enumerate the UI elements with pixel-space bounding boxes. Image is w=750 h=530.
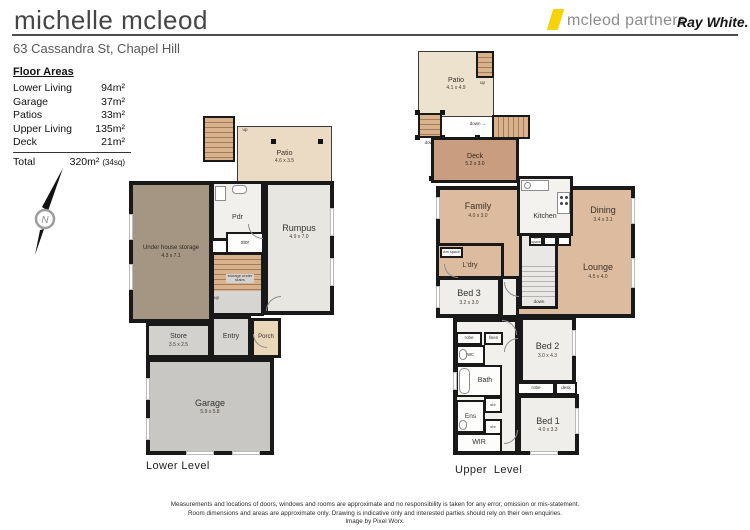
deck-post (440, 110, 445, 115)
property-address: 63 Cassandra St, Chapel Hill (13, 41, 180, 56)
room-label: Patio (448, 77, 464, 86)
deck-post (318, 139, 323, 144)
room-dims: 4.5 x 4.0 (566, 274, 630, 281)
room-dims: 4.0 x 3.3 (538, 427, 557, 433)
window (575, 408, 579, 434)
toilet-icon (232, 185, 247, 194)
sink-icon (524, 182, 531, 189)
room-store: Store 3.5 x 2.5 (146, 323, 211, 358)
room-dims: 4.1 x 4.9 (446, 85, 465, 91)
stairs-lower-mid-icon (211, 252, 264, 316)
row-label: Deck (13, 136, 37, 150)
window (330, 258, 334, 286)
disclaimer: Measurements and locations of doors, win… (0, 501, 750, 527)
linen-cupboard: linen (484, 332, 503, 345)
window (631, 258, 635, 288)
stairs-down-label: down → (465, 122, 491, 127)
row-label: Lower Living (13, 82, 72, 96)
label-text: ref space (531, 237, 541, 245)
stove-icon (557, 192, 570, 214)
room-dims: 3.0 x 4.3 (538, 353, 557, 359)
room-label: Store (170, 333, 187, 342)
table-row: Deck 21m² (13, 136, 125, 150)
row-value: 21m² (101, 136, 125, 150)
window (436, 197, 440, 219)
room-family: Family 4.0 x 3.0 (442, 201, 514, 219)
room-lounge: Lounge 4.5 x 4.0 (566, 262, 630, 280)
label-text: robe (531, 386, 540, 391)
lower-level-caption: Lower Level (146, 460, 210, 472)
room-dims: 4.9 x 7.0 (289, 234, 308, 240)
room-label: L'dry (463, 262, 478, 271)
row-value: 135m² (95, 123, 125, 137)
total-area: 320m² (70, 156, 100, 168)
room-dims: 3.2 x 3.0 (459, 300, 478, 306)
brand-ray-white: Ray White. (677, 14, 749, 30)
room-entry: Entry (211, 316, 251, 358)
window (631, 198, 635, 224)
room-label: Kitchen (533, 213, 556, 222)
table-row: Patios 33m² (13, 109, 125, 123)
robe-bed3: robe (456, 332, 482, 345)
pantry-cupboard (543, 236, 557, 246)
room-label: Patio (277, 150, 293, 159)
room-label: shr (490, 425, 496, 429)
room-label: Rumpus (282, 223, 316, 234)
window (232, 451, 260, 455)
pantry-cupboard (557, 236, 571, 246)
room-bed3: Bed 3 3.2 x 3.0 (436, 276, 502, 318)
window (186, 451, 214, 455)
room-label: Lounge (566, 262, 630, 274)
row-label: Patios (13, 109, 42, 123)
floor-areas-title: Floor Areas (13, 66, 131, 78)
room-dims: 5.2 x 3.0 (465, 161, 484, 167)
window (530, 451, 558, 455)
toilet-icon (459, 420, 467, 430)
window (453, 372, 457, 390)
header-divider (12, 34, 738, 36)
room-dims: 5.9 x 5.8 (200, 409, 219, 415)
row-value: 94m² (101, 82, 125, 96)
room-wir: WIR (456, 433, 502, 453)
brand-mcleod-partners: mcleod partners (567, 12, 686, 30)
ref-space-label: ref space (529, 236, 543, 246)
label-text: wm space (443, 250, 460, 254)
room-label: Bed 1 (536, 416, 560, 427)
toilet-icon (459, 349, 467, 360)
deck-post (271, 139, 276, 144)
room-label: Family (442, 201, 514, 213)
room-dims: 3.5 x 2.5 (169, 342, 188, 348)
room-dims: 4.0 x 3.0 (442, 213, 514, 220)
room-label: wc (467, 352, 474, 358)
window (146, 378, 150, 400)
stairs-down-label: down (530, 300, 548, 305)
cooktop-burners-icon (560, 196, 563, 199)
stairs-patio-icon (476, 51, 494, 78)
shower-1: shr (484, 397, 502, 413)
room-label: Dining (573, 205, 633, 217)
upper-level-caption: Upper Level (455, 464, 522, 476)
room-label: WIR (472, 439, 486, 447)
window (129, 214, 133, 240)
room-bed1: Bed 1 4.0 x 3.3 (517, 394, 579, 455)
bathtub-icon (459, 368, 470, 394)
table-row: Lower Living 94m² (13, 82, 125, 96)
label-text: desk (561, 386, 571, 391)
disclaimer-line-2: Room dimensions and areas are approximat… (0, 510, 750, 519)
table-row: Garage 37m² (13, 96, 125, 110)
room-label: shr (490, 403, 496, 407)
room-label: Ens (465, 413, 476, 420)
floorplan-page: michelle mcleod mcleod partners Ray Whit… (0, 0, 750, 530)
disclaimer-line-1: Measurements and locations of doors, win… (0, 501, 750, 510)
room-dims: 4.6 x 3.5 (275, 158, 294, 164)
window (572, 330, 576, 356)
row-label: Garage (13, 96, 48, 110)
stair-treads (522, 262, 555, 298)
room-label: Bath (478, 377, 492, 385)
stairs-up-label: up (214, 296, 219, 301)
table-total-divider (13, 152, 131, 153)
room-label: Deck (467, 153, 483, 162)
stairs-up-label: up (237, 128, 253, 133)
window (330, 208, 334, 236)
room-dims: 3.4 x 3.1 (573, 217, 633, 224)
label-text: linen (489, 336, 499, 341)
room-label: Pdr (232, 214, 243, 223)
room-label: Bed 2 (536, 341, 560, 352)
total-value: 320m² (34sq) (70, 156, 125, 170)
label-text: robe (464, 336, 473, 341)
room-deck: Deck 5.2 x 3.0 (431, 137, 519, 183)
room-label: Under house storage (143, 245, 199, 253)
window (436, 286, 440, 308)
room-patio-lower: Patio 4.6 x 3.5 (237, 126, 332, 188)
window (146, 418, 150, 440)
compass-n-label: N (41, 215, 49, 226)
row-value: 33m² (101, 109, 125, 123)
agent-name: michelle mcleod (14, 5, 208, 36)
room-dining: Dining 3.4 x 3.1 (573, 205, 633, 223)
mcleod-partners-logo-icon (547, 9, 564, 30)
room-dims: 4.3 x 7.1 (161, 253, 180, 259)
room-label: Bed 3 (457, 288, 481, 299)
row-label: Upper Living (13, 123, 72, 137)
wm-space-label: wm space (440, 247, 463, 258)
table-row: Upper Living 135m² (13, 123, 125, 137)
storage-under-stairs-label: storage under stairs (226, 274, 254, 283)
compass-north-icon: N (18, 166, 74, 258)
room-garage: Garage 5.9 x 5.8 (146, 358, 274, 455)
floor-areas-table: Floor Areas Lower Living 94m² Garage 37m… (13, 66, 131, 169)
stairs-lower-entry-icon (203, 116, 235, 162)
stairs-up-label: up (480, 81, 485, 86)
deck-post (415, 135, 420, 140)
deck-post (415, 110, 420, 115)
room-label: Garage (195, 398, 225, 409)
disclaimer-line-3: Image by Pixel Worx. (0, 518, 750, 527)
row-value: 37m² (101, 96, 125, 110)
stairs-deck-mid-icon (492, 115, 530, 139)
total-squares-note: (34sq) (102, 158, 125, 167)
window (129, 264, 133, 290)
room-under-house-storage: Under house storage 4.3 x 7.1 (129, 181, 213, 323)
sink-icon (215, 186, 226, 201)
room-rumpus: Rumpus 4.9 x 7.0 (264, 181, 334, 315)
stairs-deck-left-icon (418, 113, 442, 138)
room-bed2: Bed 2 3.0 x 4.3 (519, 316, 576, 384)
room-label: Entry (223, 333, 239, 342)
room-label: stor (241, 241, 249, 247)
